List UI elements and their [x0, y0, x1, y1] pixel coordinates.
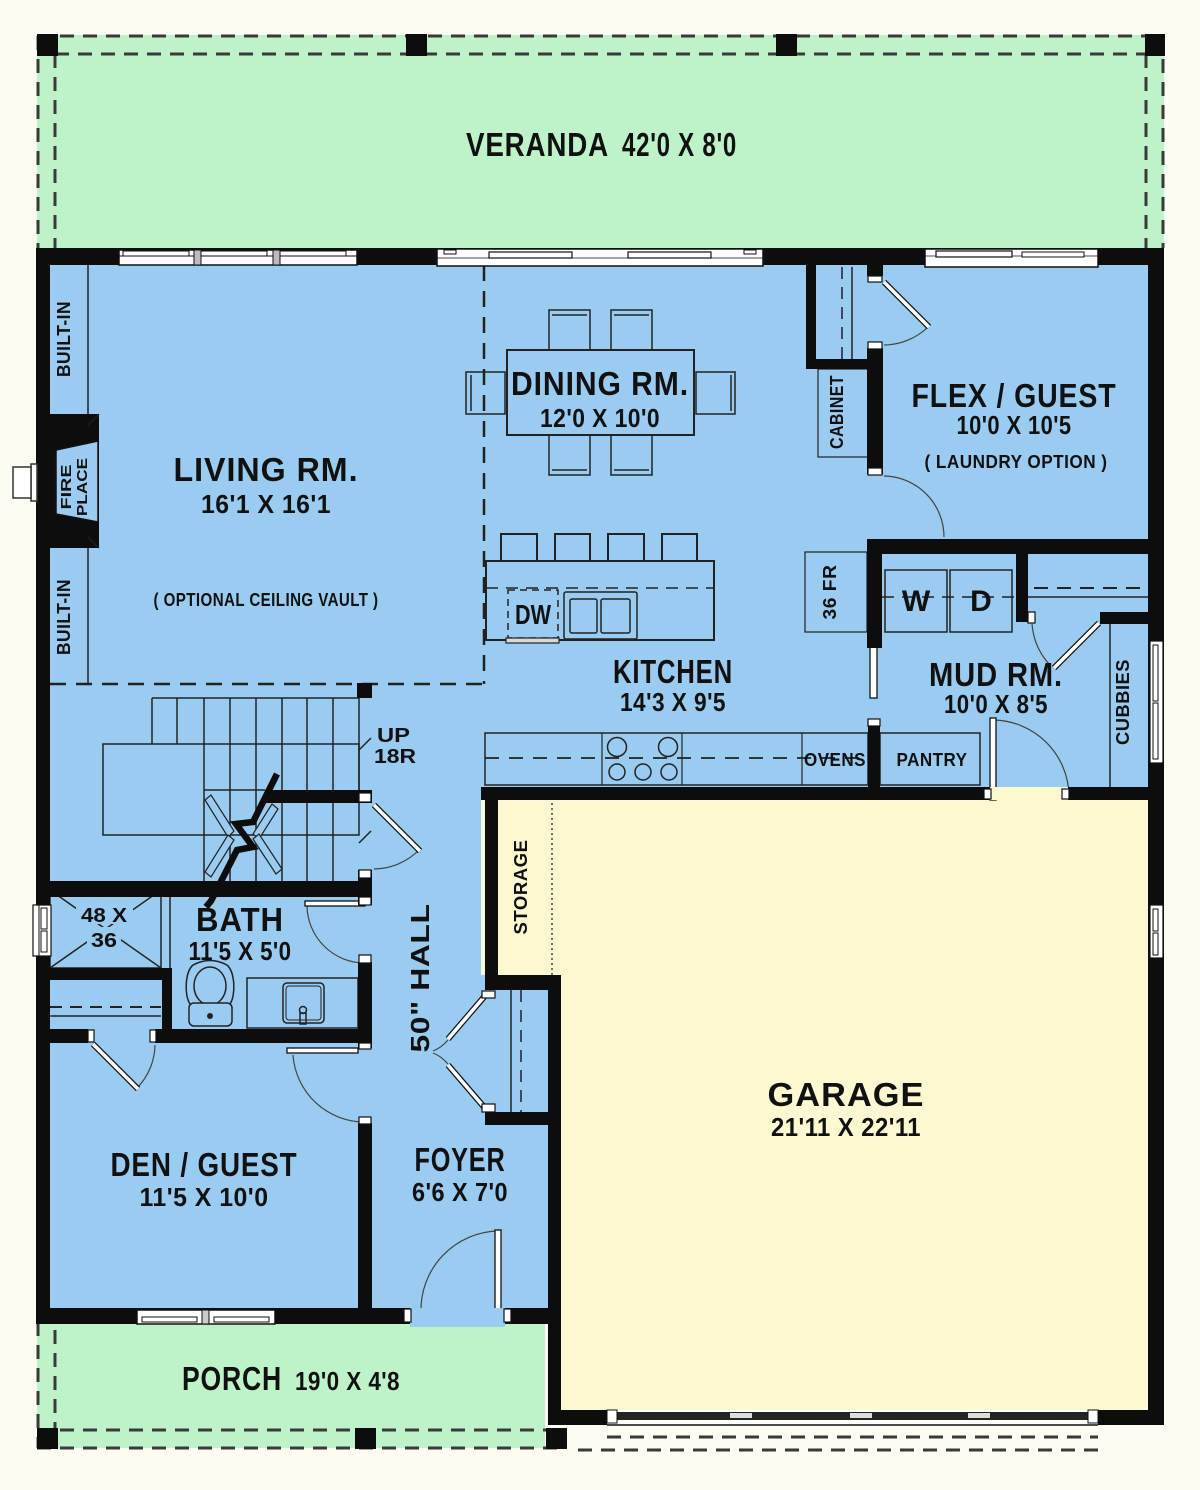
- svg-text:FOYER: FOYER: [415, 1141, 506, 1178]
- svg-text:14'3 X 9'5: 14'3 X 9'5: [620, 687, 726, 717]
- svg-text:48 X: 48 X: [81, 905, 128, 927]
- svg-text:36 FR: 36 FR: [820, 565, 840, 620]
- svg-text:10'0 X 8'5: 10'0 X 8'5: [944, 689, 1048, 719]
- svg-text:6'6 X 7'0: 6'6 X 7'0: [412, 1177, 508, 1207]
- svg-text:12'0 X 10'0: 12'0 X 10'0: [540, 403, 660, 433]
- svg-text:VERANDA: VERANDA: [466, 126, 609, 163]
- svg-text:LIVING RM.: LIVING RM.: [174, 451, 359, 488]
- svg-text:DINING RM.: DINING RM.: [511, 365, 689, 402]
- svg-text:GARAGE: GARAGE: [768, 1076, 925, 1113]
- svg-text:PLACE: PLACE: [74, 458, 91, 516]
- svg-text:OVENS: OVENS: [804, 750, 866, 770]
- svg-text:UP: UP: [377, 725, 410, 747]
- svg-text:( OPTIONAL CEILING VAULT ): ( OPTIONAL CEILING VAULT ): [154, 590, 379, 610]
- svg-text:FLEX / GUEST: FLEX / GUEST: [912, 377, 1117, 414]
- svg-text:DW: DW: [515, 599, 551, 630]
- svg-text:CABINET: CABINET: [827, 375, 847, 449]
- svg-text:BATH: BATH: [196, 901, 284, 938]
- svg-text:18R: 18R: [374, 746, 417, 768]
- svg-text:BUILT-IN: BUILT-IN: [54, 579, 74, 655]
- svg-text:16'1 X 16'1: 16'1 X 16'1: [201, 489, 331, 519]
- svg-text:PANTRY: PANTRY: [897, 750, 968, 770]
- svg-text:DEN / GUEST: DEN / GUEST: [111, 1146, 298, 1183]
- svg-text:D: D: [970, 585, 992, 618]
- svg-text:( LAUNDRY OPTION ): ( LAUNDRY OPTION ): [925, 452, 1108, 472]
- svg-text:W: W: [902, 585, 931, 618]
- svg-text:KITCHEN: KITCHEN: [613, 653, 733, 690]
- svg-text:36: 36: [91, 930, 117, 952]
- svg-text:11'5 X 10'0: 11'5 X 10'0: [140, 1182, 269, 1212]
- svg-text:11'5 X 5'0: 11'5 X 5'0: [189, 936, 292, 966]
- svg-text:50" HALL: 50" HALL: [405, 904, 435, 1053]
- svg-text:21'11 X 22'11: 21'11 X 22'11: [771, 1112, 921, 1142]
- svg-text:BUILT-IN: BUILT-IN: [54, 301, 74, 377]
- svg-text:STORAGE: STORAGE: [511, 840, 531, 935]
- svg-text:CUBBIES: CUBBIES: [1113, 659, 1133, 745]
- svg-text:10'0 X 10'5: 10'0 X 10'5: [957, 410, 1072, 440]
- svg-text:42'0 X 8'0: 42'0 X 8'0: [622, 126, 737, 163]
- svg-text:MUD RM.: MUD RM.: [929, 656, 1063, 693]
- svg-text:FIRE: FIRE: [58, 465, 75, 510]
- svg-text:19'0 X 4'8: 19'0 X 4'8: [295, 1366, 400, 1396]
- svg-text:PORCH: PORCH: [182, 1360, 282, 1397]
